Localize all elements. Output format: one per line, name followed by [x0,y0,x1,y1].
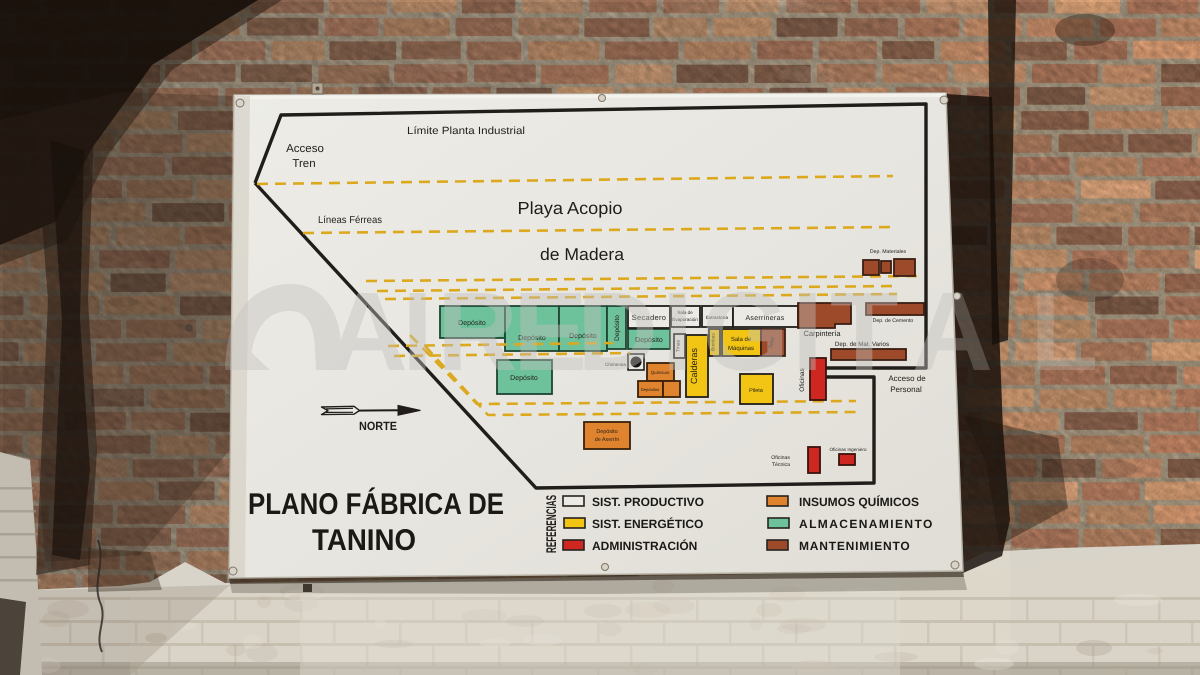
svg-text:Líneas Férreas: Líneas Férreas [318,215,382,226]
svg-text:TANINO: TANINO [312,524,416,557]
svg-text:ALMACENAMIENTO: ALMACENAMIENTO [799,517,934,531]
svg-text:ADMINISTRACIÓN: ADMINISTRACIÓN [592,539,697,553]
svg-text:Dep. Materiales: Dep. Materiales [870,249,907,255]
svg-text:de Madera: de Madera [540,245,625,264]
svg-text:Playa Acopio: Playa Acopio [518,198,623,218]
svg-text:de Aserrín: de Aserrín [595,437,620,443]
svg-text:NORTE: NORTE [359,419,397,433]
svg-text:REFERENCIAS: REFERENCIAS [543,495,559,553]
svg-text:Tren: Tren [292,158,315,170]
svg-text:Depósito: Depósito [596,429,617,435]
svg-text:Oficinas Ingeniero: Oficinas Ingeniero [829,447,866,452]
svg-text:Límite Planta Industrial: Límite Planta Industrial [407,125,525,137]
svg-text:INSUMOS QUÍMICOS: INSUMOS QUÍMICOS [799,495,919,509]
svg-text:MANTENIMIENTO: MANTENIMIENTO [799,539,911,553]
svg-text:Acceso: Acceso [286,143,324,155]
svg-text:SIST. PRODUCTIVO: SIST. PRODUCTIVO [592,495,704,509]
svg-text:Oficinas: Oficinas [771,455,790,461]
svg-text:SIST. ENERGÉTICO: SIST. ENERGÉTICO [592,517,703,531]
svg-text:PLANO FÁBRICA DE: PLANO FÁBRICA DE [248,487,504,521]
svg-text:Técnica: Técnica [772,462,790,468]
